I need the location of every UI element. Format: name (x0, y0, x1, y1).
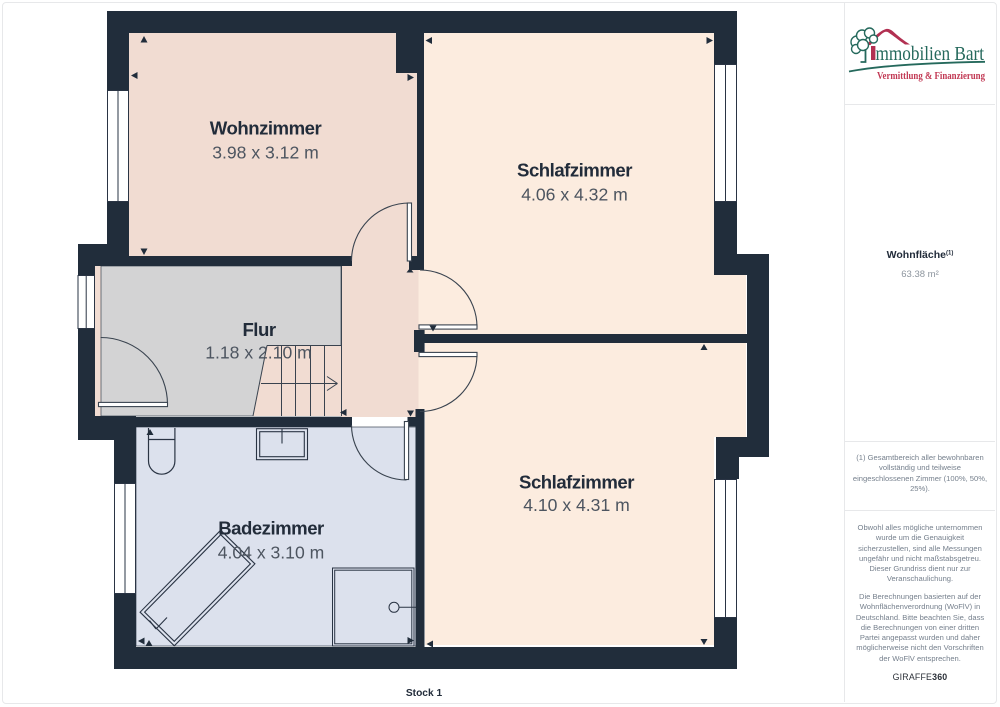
svg-text:4.04 x 3.10 m: 4.04 x 3.10 m (218, 543, 325, 563)
svg-text:4.10 x 4.31 m: 4.10 x 4.31 m (523, 495, 630, 515)
svg-text:Vermittlung & Finanzierung: Vermittlung & Finanzierung (877, 71, 986, 82)
svg-text:1.18 x 2.10 m: 1.18 x 2.10 m (205, 343, 312, 363)
svg-text:Wohnzimmer: Wohnzimmer (210, 118, 322, 139)
svg-text:Schlafzimmer: Schlafzimmer (517, 160, 632, 181)
svg-text:Schlafzimmer: Schlafzimmer (519, 472, 634, 493)
svg-text:Badezimmer: Badezimmer (218, 518, 324, 539)
svg-text:Flur: Flur (242, 319, 275, 340)
svg-text:3.98 x 3.12 m: 3.98 x 3.12 m (212, 143, 319, 163)
svg-text:4.06 x 4.32 m: 4.06 x 4.32 m (521, 185, 628, 205)
svg-text:Stock 1: Stock 1 (406, 688, 443, 699)
